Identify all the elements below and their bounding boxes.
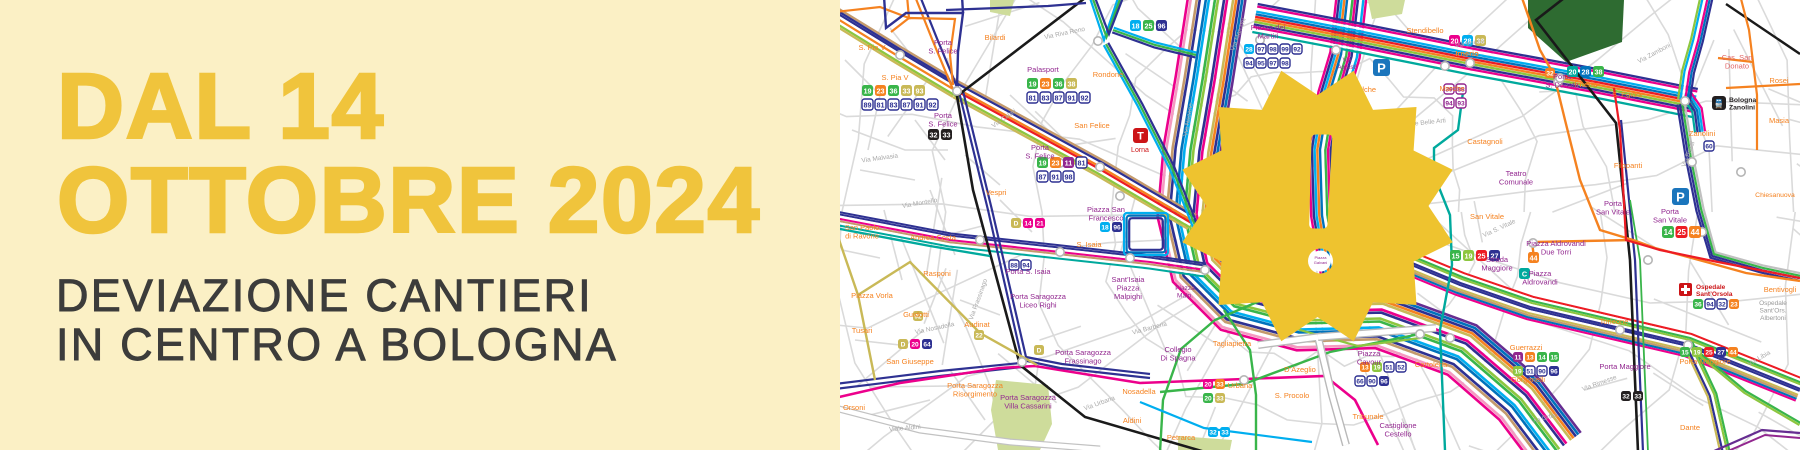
svg-text:27: 27 (1717, 350, 1725, 357)
svg-text:D: D (1037, 348, 1042, 355)
svg-text:98: 98 (1064, 172, 1072, 181)
svg-text:97: 97 (1257, 47, 1265, 54)
svg-text:20: 20 (911, 342, 919, 349)
svg-text:Albertoni: Albertoni (1760, 315, 1786, 322)
svg-text:98: 98 (1269, 47, 1277, 54)
svg-text:Cavour: Cavour (1357, 358, 1382, 367)
svg-text:Aldini: Aldini (1123, 416, 1142, 425)
svg-text:Donato: Donato (1725, 62, 1749, 71)
svg-text:Zanolini: Zanolini (1729, 105, 1755, 112)
svg-text:13: 13 (1526, 355, 1534, 362)
svg-text:32: 32 (929, 130, 937, 139)
svg-text:96: 96 (1380, 379, 1388, 386)
svg-text:28: 28 (1245, 47, 1253, 54)
svg-text:92: 92 (928, 100, 936, 109)
svg-text:44: 44 (1729, 350, 1737, 357)
svg-text:Tribunale: Tribunale (1353, 412, 1384, 421)
svg-text:44: 44 (1529, 253, 1537, 262)
svg-text:91: 91 (1067, 93, 1075, 102)
svg-text:Ospedale: Ospedale (1759, 300, 1787, 307)
svg-text:38: 38 (1594, 67, 1602, 76)
svg-text:S. Felice: S. Felice (928, 120, 957, 129)
svg-text:22: 22 (975, 333, 983, 340)
svg-text:36: 36 (889, 86, 897, 95)
svg-text:Villa Cassarini: Villa Cassarini (1004, 402, 1052, 411)
svg-text:Lorna: Lorna (1131, 147, 1149, 154)
svg-text:San Vitale: San Vitale (1596, 208, 1630, 217)
svg-text:33: 33 (1221, 430, 1229, 437)
svg-text:44: 44 (1691, 228, 1700, 237)
svg-text:Nosadella: Nosadella (1122, 387, 1156, 396)
svg-text:Malpighi: Malpighi (1114, 292, 1142, 301)
svg-text:San Felice: San Felice (1074, 121, 1109, 130)
svg-text:Maggiore: Maggiore (1481, 264, 1512, 273)
svg-text:Audinat: Audinat (964, 320, 990, 329)
svg-text:23: 23 (1730, 302, 1738, 309)
svg-text:Urbana: Urbana (1228, 381, 1253, 390)
svg-text:19: 19 (1028, 79, 1036, 88)
svg-text:Sant’Orsola: Sant’Orsola (1696, 291, 1733, 298)
svg-text:D’Azeglio: D’Azeglio (1284, 365, 1316, 374)
svg-text:Due Torri: Due Torri (1541, 248, 1572, 257)
svg-text:🚆: 🚆 (1714, 99, 1725, 109)
svg-text:Tusari: Tusari (852, 326, 873, 335)
svg-text:19: 19 (1464, 251, 1472, 260)
svg-text:91: 91 (1051, 172, 1059, 181)
svg-text:Castagnoli: Castagnoli (1467, 137, 1503, 146)
svg-text:Risorgimento: Risorgimento (953, 390, 997, 399)
svg-text:D: D (1014, 221, 1019, 228)
svg-text:25: 25 (1144, 21, 1152, 30)
svg-text:89: 89 (863, 100, 871, 109)
svg-text:66: 66 (1356, 379, 1364, 386)
svg-text:S. Felice: S. Felice (928, 47, 957, 56)
svg-text:Masia: Masia (1769, 116, 1790, 125)
svg-text:S. Isaia: S. Isaia (1076, 240, 1102, 249)
svg-text:92: 92 (1293, 47, 1301, 54)
svg-text:21: 21 (1036, 221, 1044, 228)
svg-text:Martiri: Martiri (1258, 32, 1279, 41)
svg-text:96: 96 (1550, 369, 1558, 376)
svg-text:20: 20 (1204, 396, 1212, 403)
svg-text:Galvani: Galvani (1314, 260, 1328, 265)
svg-text:Chiesanuova: Chiesanuova (1755, 192, 1795, 199)
svg-text:15: 15 (1451, 251, 1459, 260)
svg-text:P: P (1676, 190, 1685, 205)
svg-text:36: 36 (1054, 79, 1062, 88)
svg-text:33: 33 (1216, 396, 1224, 403)
svg-text:Liceo Righi: Liceo Righi (1019, 301, 1056, 310)
svg-text:Bentivogli: Bentivogli (1764, 285, 1797, 294)
svg-text:Vespri: Vespri (986, 188, 1007, 197)
svg-text:15: 15 (1681, 350, 1689, 357)
svg-text:Rondone: Rondone (1093, 70, 1123, 79)
svg-text:96: 96 (1113, 225, 1121, 232)
svg-text:25: 25 (1477, 251, 1485, 260)
svg-text:Aldrovandi: Aldrovandi (1522, 278, 1558, 287)
svg-text:87: 87 (902, 100, 910, 109)
svg-text:19: 19 (1693, 350, 1701, 357)
svg-text:15: 15 (1550, 355, 1558, 362)
svg-text:20: 20 (1204, 382, 1212, 389)
svg-text:D: D (901, 342, 906, 349)
svg-text:T: T (1137, 131, 1144, 143)
svg-text:87: 87 (1038, 172, 1046, 181)
svg-text:Zanolini: Zanolini (1689, 129, 1716, 138)
svg-text:83: 83 (1041, 93, 1049, 102)
svg-text:99: 99 (1281, 47, 1289, 54)
svg-text:Bologna: Bologna (1729, 97, 1756, 104)
svg-text:Agresti: Agresti (1337, 64, 1356, 71)
svg-text:33: 33 (942, 130, 950, 139)
svg-text:19: 19 (863, 86, 871, 95)
svg-text:Guidotti: Guidotti (903, 310, 929, 319)
svg-text:95: 95 (1257, 61, 1265, 68)
svg-text:91: 91 (915, 100, 923, 109)
svg-text:Comunale: Comunale (1499, 178, 1533, 187)
svg-text:Malp.: Malp. (1177, 293, 1193, 300)
svg-text:Gorganelli: Gorganelli (1511, 375, 1546, 384)
svg-text:81: 81 (876, 100, 884, 109)
svg-text:Via: Via (1343, 57, 1352, 64)
svg-text:Petrarca: Petrarca (1167, 433, 1196, 442)
svg-text:11: 11 (1515, 355, 1522, 362)
svg-text:11: 11 (1065, 158, 1073, 167)
svg-text:96: 96 (1157, 21, 1165, 30)
svg-text:San Giuseppe: San Giuseppe (886, 357, 934, 366)
svg-text:Francesco: Francesco (1088, 214, 1123, 223)
svg-text:Dante: Dante (1680, 423, 1700, 432)
svg-text:P: P (1377, 61, 1386, 76)
svg-text:di Ravone: di Ravone (845, 232, 879, 241)
svg-text:33: 33 (1216, 382, 1224, 389)
svg-text:S. Procolo: S. Procolo (1275, 391, 1310, 400)
svg-text:Porta S. Isaia: Porta S. Isaia (1005, 267, 1051, 276)
svg-text:83: 83 (889, 100, 897, 109)
svg-text:28: 28 (1581, 67, 1589, 76)
svg-text:64: 64 (923, 342, 931, 349)
svg-text:14: 14 (1664, 228, 1673, 237)
svg-text:S. Egidia: S. Egidia (1612, 90, 1643, 99)
svg-text:S. Pia V: S. Pia V (881, 73, 908, 82)
svg-text:93: 93 (915, 86, 923, 95)
svg-text:18: 18 (1131, 21, 1139, 30)
svg-text:23: 23 (876, 86, 884, 95)
svg-text:Piazza: Piazza (1175, 285, 1195, 292)
svg-text:18: 18 (1101, 225, 1109, 232)
svg-text:Torleone: Torleone (1600, 317, 1629, 326)
svg-text:14: 14 (1024, 221, 1032, 228)
svg-text:S. Felice: S. Felice (1025, 152, 1054, 161)
svg-text:Guerrazzi: Guerrazzi (1510, 343, 1543, 352)
svg-text:Orsoni: Orsoni (843, 403, 865, 412)
svg-text:81: 81 (1077, 158, 1085, 167)
svg-text:38: 38 (1067, 79, 1075, 88)
svg-text:S. Pia V: S. Pia V (858, 43, 885, 52)
svg-text:Cestello: Cestello (1384, 430, 1411, 439)
svg-text:90: 90 (1368, 379, 1376, 386)
svg-text:Stendibello: Stendibello (1406, 26, 1443, 35)
svg-text:S. Donata: S. Donata (1545, 81, 1579, 90)
svg-text:33: 33 (1634, 394, 1642, 401)
svg-text:Andrea Costa: Andrea Costa (910, 233, 957, 242)
svg-text:Marche: Marche (1439, 84, 1464, 93)
svg-text:San Vitale: San Vitale (1653, 216, 1687, 225)
svg-text:Cartoleria: Cartoleria (1415, 360, 1448, 369)
svg-text:Bilardi: Bilardi (985, 33, 1006, 42)
svg-text:81: 81 (1028, 93, 1036, 102)
svg-text:93: 93 (1457, 101, 1465, 108)
svg-text:94: 94 (1445, 101, 1453, 108)
svg-text:98: 98 (1281, 61, 1289, 68)
svg-text:Irnerio: Irnerio (1455, 49, 1479, 58)
svg-text:Rosei: Rosei (1769, 76, 1789, 85)
svg-text:25: 25 (1677, 228, 1686, 237)
svg-text:94: 94 (1706, 302, 1714, 309)
svg-text:Rasponi: Rasponi (923, 269, 951, 278)
svg-text:94: 94 (1245, 61, 1253, 68)
svg-text:Porta Maggiore: Porta Maggiore (1599, 362, 1650, 371)
svg-text:Piazza Vorla: Piazza Vorla (851, 291, 894, 300)
svg-text:32: 32 (1622, 394, 1630, 401)
svg-text:97: 97 (1269, 61, 1277, 68)
svg-text:32: 32 (1209, 430, 1217, 437)
svg-text:36: 36 (1694, 302, 1702, 309)
svg-text:33: 33 (902, 86, 910, 95)
svg-text:Di Spagna: Di Spagna (1160, 354, 1196, 363)
svg-text:52: 52 (1397, 365, 1405, 372)
svg-text:92: 92 (1080, 93, 1088, 102)
svg-text:60: 60 (1705, 144, 1713, 151)
svg-text:Porta Maggiore: Porta Maggiore (1679, 357, 1730, 366)
svg-text:25: 25 (1705, 350, 1713, 357)
svg-text:87: 87 (1054, 93, 1062, 102)
svg-text:Tagliapietra: Tagliapietra (1213, 339, 1252, 348)
svg-text:32: 32 (1718, 302, 1726, 309)
svg-text:Frassinago: Frassinago (1064, 357, 1101, 366)
svg-text:Sant’Ors.: Sant’Ors. (1759, 308, 1786, 315)
svg-text:23: 23 (1041, 79, 1049, 88)
svg-text:51: 51 (1385, 365, 1393, 372)
svg-text:San Vitale: San Vitale (1470, 212, 1504, 221)
svg-text:Palasport: Palasport (1027, 65, 1060, 74)
svg-text:Filopanti: Filopanti (1614, 161, 1643, 170)
svg-text:Ospedale: Ospedale (1696, 284, 1726, 291)
svg-text:14: 14 (1538, 355, 1546, 362)
